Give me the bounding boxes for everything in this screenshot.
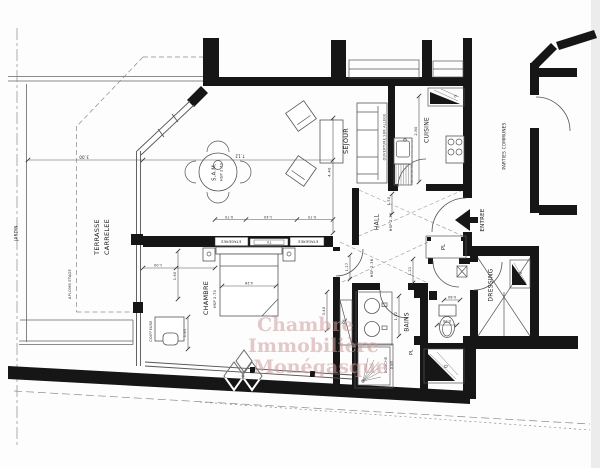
label-etageres-1: ETAGERES [220,240,241,244]
floorplan-scan: JARDIN TERRASSE CARRELEE APLOMB ETAGE S.… [0,0,600,468]
wc-door-arc [433,261,459,287]
coiffeuse-desk [155,317,184,345]
dim-152: 1.52 [394,312,398,321]
dressing-shelving [478,258,530,336]
dim-300: 3.00 [79,155,89,160]
dim-150: 1.50 [387,197,391,206]
label-jardin: JARDIN [14,225,19,241]
dim-140: 1.40 [264,215,272,219]
dim-cuisine: 2.80 [414,126,418,136]
label-pl-hall: PL [441,244,447,250]
label-corridor-hsp: HSP 2.36 [370,258,374,277]
label-sejour: SEJOUR [342,128,350,154]
label-hall: HALL [374,213,381,230]
label-cuisine: CUISINE [424,117,431,143]
dim-160: 1.60 [173,272,177,280]
commons-door-arc [536,97,570,131]
label-sam-hsp: HSP 2.70 [220,162,224,181]
label-terrasse-1: TERRASSE [93,219,101,256]
label-chambre: CHAMBRE [202,281,210,315]
label-bains: BAINS [404,312,411,332]
coffee-table [320,120,343,163]
dim-121: 1.21 [408,267,412,276]
label-hall-hsp: HSP 2.36 [389,212,393,231]
label-chambre-hsp: HSP 2.70 [213,289,217,308]
scan-edge [591,0,600,468]
dim-100: 1.00 [154,263,162,267]
label-gaine-2: G [518,271,523,274]
dim-127: 1.27 [345,263,349,272]
armchair-1 [286,101,317,132]
watermark-line-2: Immobilière [248,335,379,357]
label-terrasse-2: CARRELEE [103,219,111,255]
entree-door-arc [432,198,466,232]
label-tv: TV [266,240,272,244]
dining-table [185,141,251,203]
watermark-line-3: Monégasque [253,356,388,378]
chambre-door-arc [336,249,363,276]
label-gaine-3: G [453,94,458,97]
label-sam: S.A.M. [212,163,218,181]
entree-arrow-icon [455,209,478,231]
label-ouverture: OUVERTURE SUR ALLEGE [383,114,387,161]
dim-712: 7.12 [235,154,245,159]
aplomb-dashed-line [77,57,204,312]
floorplan-svg: JARDIN TERRASSE CARRELEE APLOMB ETAGE S.… [0,0,600,468]
watermark-line-1: Chambre [257,314,354,336]
dim-080: 0.80 [390,361,394,370]
label-coiffeuse: COIFFEUSE [149,320,153,341]
label-pl-douche: PL [409,349,415,355]
label-entree: ENTREE [480,208,486,231]
label-dressing: DRESSING [488,268,495,301]
dim-060: 0.60 [448,295,456,299]
dim-145: 1.45 [183,329,187,337]
label-gaine-1: G [444,364,450,368]
parcel-dashes [14,391,590,430]
label-aplomb: APLOMB ETAGE [68,269,72,299]
dim-070b: 0.70 [308,215,316,219]
dim-440: 4.40 [327,167,332,177]
dim-090: 0.90 [443,319,451,323]
dim-426: 4.26 [245,281,253,285]
label-etageres-2: ETAGERES [297,240,318,244]
label-parties-communes: PARTIES COMMUNES [502,122,507,169]
toilet-tank [439,305,456,316]
dim-070a: 0.70 [225,215,233,219]
